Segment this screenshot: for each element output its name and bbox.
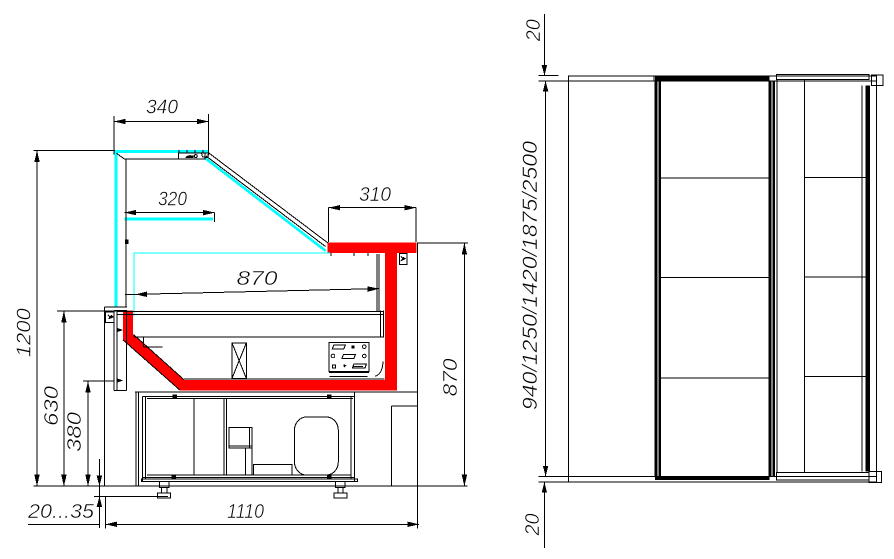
- svg-text:320: 320: [158, 189, 187, 211]
- svg-text:20: 20: [522, 514, 544, 537]
- svg-text:870: 870: [440, 358, 462, 396]
- svg-text:940/1250/1420/1875/2500: 940/1250/1420/1875/2500: [519, 141, 542, 410]
- svg-text:20: 20: [523, 19, 545, 42]
- svg-text:310: 310: [359, 184, 391, 206]
- svg-text:1200: 1200: [14, 308, 36, 357]
- svg-text:1110: 1110: [227, 501, 264, 523]
- svg-text:870: 870: [237, 268, 278, 290]
- svg-text:630: 630: [41, 386, 63, 426]
- svg-text:380: 380: [64, 412, 86, 452]
- svg-text:20...35: 20...35: [27, 501, 95, 523]
- svg-text:340: 340: [146, 97, 178, 119]
